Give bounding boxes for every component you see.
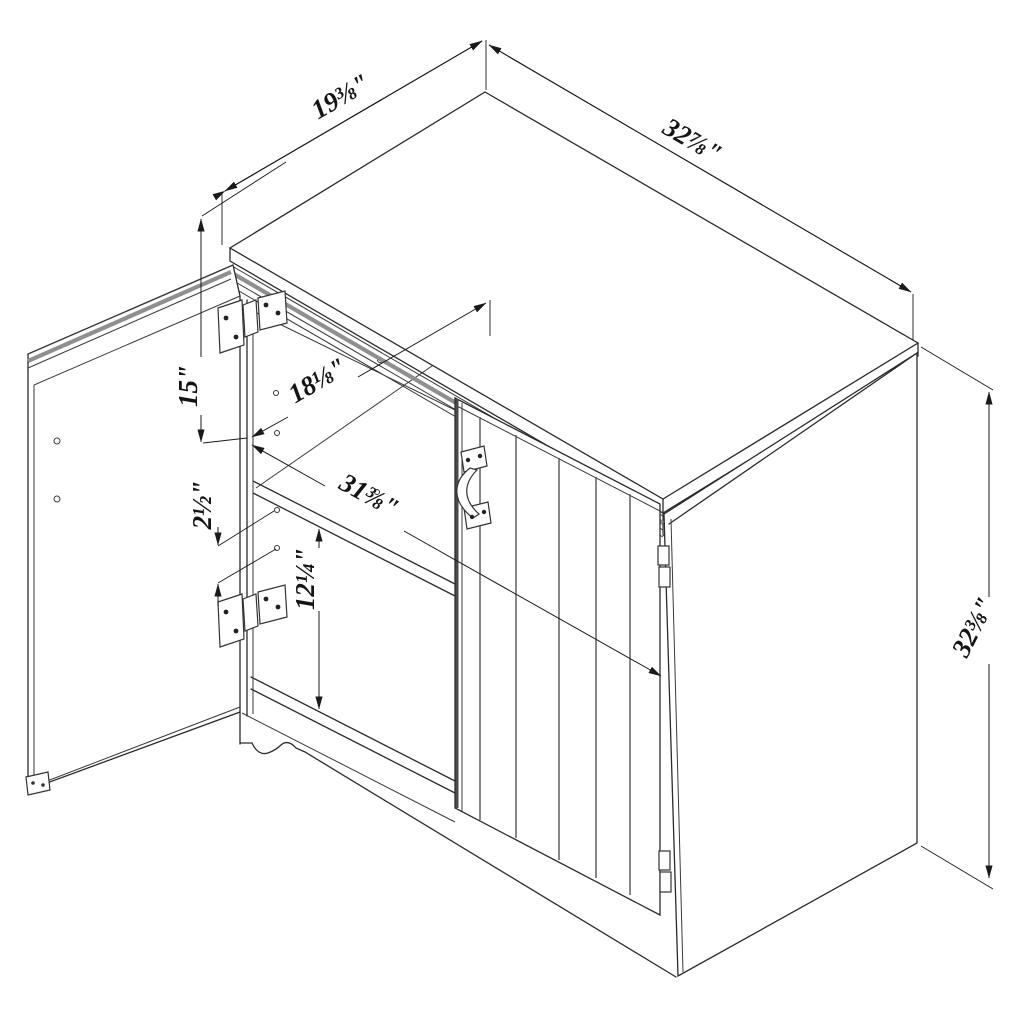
dim-overall-height-label: 32⅜" <box>945 592 1000 662</box>
barrel-hinge-upper <box>658 546 670 587</box>
hinge-knuckle <box>243 300 258 337</box>
dim-shelf-clearance-label: 12¼" <box>290 548 320 610</box>
dim-interior-depth-label: 18⅛" <box>283 352 352 409</box>
dim-interior-width-label: 31⅜" <box>334 467 404 524</box>
extension-line <box>202 162 286 216</box>
extension-line <box>921 846 993 889</box>
dimension-overall-height: 32⅜" <box>921 347 1000 889</box>
interior-back-edge <box>256 350 455 488</box>
extension-line <box>921 347 993 390</box>
pin-hole <box>274 391 279 396</box>
kick-top-edge <box>242 713 455 822</box>
hinge-door-plate <box>218 300 244 353</box>
dim-pin-hole-spacing-label: 2½" <box>187 481 217 531</box>
hinge-frame-plate <box>258 585 287 624</box>
hinge-frame-plate <box>258 291 287 330</box>
cabinet-interior <box>242 313 455 822</box>
dimension-line <box>252 417 288 437</box>
cabinet-drawing: 19⅜" 32⅞" 15" 18⅛" 31⅜" 2½" <box>0 0 1024 1024</box>
dim-door-top-height-label: 15" <box>173 365 203 407</box>
shelf-thickness-edge <box>253 493 455 596</box>
dim-top-depth-label: 19⅜" <box>306 68 375 125</box>
furniture-dimension-diagram: 19⅜" 32⅞" 15" 18⅛" 31⅜" 2½" <box>0 0 1024 1024</box>
bottom-shelf-front-edge <box>251 677 455 781</box>
pin-hole <box>275 431 280 436</box>
barrel-hinge-lower <box>659 851 671 892</box>
dimension-line <box>252 445 325 486</box>
pin-hole <box>275 508 280 513</box>
bottom-shelf-thickness-edge <box>251 689 455 793</box>
cabinet-front-left-edge <box>247 300 253 716</box>
hinge-knuckle <box>243 594 258 631</box>
hinge-door-plate <box>218 594 244 647</box>
dim-top-width-label: 32⅞" <box>657 111 727 169</box>
dimension-shelf-clearance: 12¼" <box>290 529 320 709</box>
